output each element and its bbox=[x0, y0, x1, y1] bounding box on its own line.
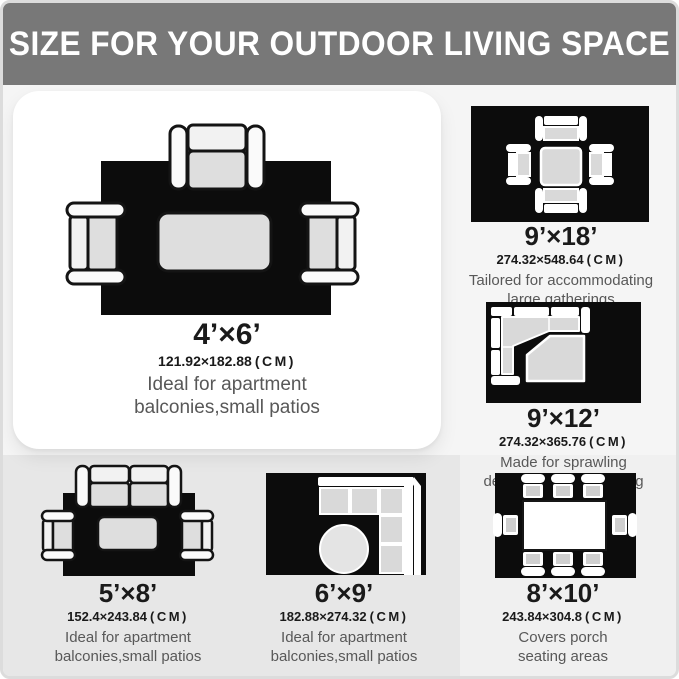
panel-9x18: 9’×18’ 274.32×548.64(CM) Tailored for ac… bbox=[451, 103, 671, 299]
panel-description: Ideal for apartment balconies,small pati… bbox=[18, 628, 238, 667]
size-label: 6’×9’ bbox=[234, 580, 454, 607]
infographic-root: SIZE FOR YOUR OUTDOOR LIVING SPACE bbox=[0, 0, 679, 679]
size-label: 5’×8’ bbox=[18, 580, 238, 607]
panel-4x6: 4’×6’ 121.92×182.88(CM) Ideal for apartm… bbox=[13, 91, 441, 449]
rug-diagram-9x18-icon bbox=[471, 106, 649, 222]
rug-diagram-5x8-icon bbox=[39, 463, 218, 578]
rug-diagram-9x12-icon bbox=[486, 302, 641, 403]
rug-diagram-8x10-icon bbox=[491, 471, 639, 580]
panel-description: Ideal for apartment balconies,small pati… bbox=[13, 373, 441, 419]
panel-description: Covers porch seating areas bbox=[453, 628, 673, 667]
size-label: 8’×10’ bbox=[453, 580, 673, 607]
size-label: 4’×6’ bbox=[13, 319, 441, 351]
size-label: 9’×12’ bbox=[451, 405, 676, 432]
panel-9x12: 9’×12’ 274.32×365.76(CM) Made for sprawl… bbox=[451, 299, 676, 469]
size-label: 9’×18’ bbox=[451, 223, 671, 250]
cm-dimensions: 274.32×365.76(CM) bbox=[451, 434, 676, 450]
header-banner: SIZE FOR YOUR OUTDOOR LIVING SPACE bbox=[3, 3, 676, 85]
panel-6x9: 6’×9’ 182.88×274.32(CM) Ideal for apartm… bbox=[234, 463, 454, 677]
panel-5x8: 5’×8’ 152.4×243.84(CM) Ideal for apartme… bbox=[18, 463, 238, 677]
cm-dimensions: 182.88×274.32(CM) bbox=[234, 609, 454, 625]
panel-8x10: 8’×10’ 243.84×304.8(CM) Covers porch sea… bbox=[453, 463, 673, 677]
rug-diagram-6x9-icon bbox=[266, 473, 426, 575]
cm-dimensions: 274.32×548.64(CM) bbox=[451, 252, 671, 268]
page-title: SIZE FOR YOUR OUTDOOR LIVING SPACE bbox=[9, 25, 670, 64]
cm-dimensions: 243.84×304.8(CM) bbox=[453, 609, 673, 625]
rug-diagram-4x6-icon bbox=[60, 119, 366, 319]
cm-dimensions: 121.92×182.88(CM) bbox=[13, 353, 441, 371]
cm-dimensions: 152.4×243.84(CM) bbox=[18, 609, 238, 625]
panel-description: Ideal for apartment balconies,small pati… bbox=[234, 628, 454, 667]
